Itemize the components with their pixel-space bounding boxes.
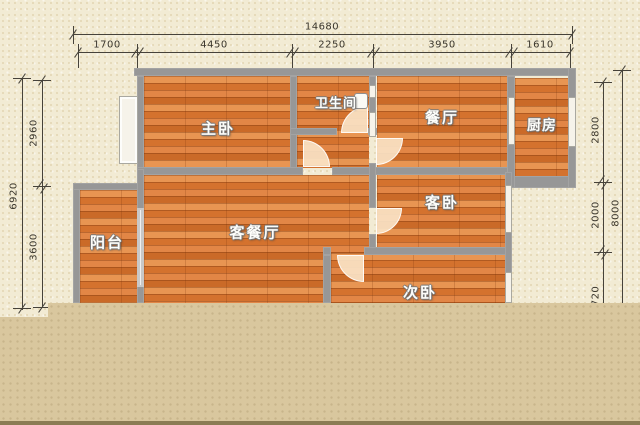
room-label-second-bedroom: 次卧 bbox=[403, 282, 437, 303]
window-bathroom-a bbox=[369, 85, 376, 98]
room-label-bathroom: 卫生间 bbox=[315, 93, 357, 112]
dim-left-total-line bbox=[22, 78, 23, 310]
room-label-balcony: 阳台 bbox=[90, 232, 124, 253]
dim-top-total: 14680 bbox=[305, 22, 339, 33]
dim-top-seg-3: 3950 bbox=[428, 40, 455, 51]
dim-right-total-line bbox=[622, 70, 623, 303]
wall-bathroom-left bbox=[290, 76, 297, 168]
dim-tick bbox=[570, 44, 571, 68]
dim-left-total: 6920 bbox=[9, 182, 20, 209]
room-label-dining-room: 餐厅 bbox=[425, 107, 459, 128]
wall-master-left bbox=[137, 76, 144, 169]
tan-overlay-left bbox=[0, 317, 48, 425]
wall-balcony-left bbox=[73, 183, 80, 303]
window-second-bedroom bbox=[505, 272, 512, 303]
dim-left-segments-line bbox=[42, 80, 43, 308]
dim-tick bbox=[594, 252, 612, 253]
dim-left-seg-1: 3600 bbox=[29, 233, 40, 260]
dim-left-seg-0: 2960 bbox=[29, 119, 40, 146]
room-label-guest-bedroom: 客卧 bbox=[425, 192, 459, 213]
wall-balcony-top bbox=[73, 183, 144, 190]
dim-top-seg-4: 1610 bbox=[526, 40, 553, 51]
dim-top-seg-2: 2250 bbox=[318, 40, 345, 51]
window-master-bedroom bbox=[119, 96, 138, 164]
floor-plan-canvas: 主卧 卫生间 餐厅 厨房 阳台 客餐厅 客卧 次卧 14680 1700 445… bbox=[0, 0, 640, 425]
dim-top-seg-0: 1700 bbox=[93, 40, 120, 51]
wall-second-top-b bbox=[364, 247, 512, 255]
window-kitchen-left bbox=[508, 97, 515, 145]
wall-second-left bbox=[323, 255, 331, 303]
room-label-living-dining-room: 客餐厅 bbox=[229, 222, 280, 243]
dim-right-seg-0: 2800 bbox=[591, 116, 602, 143]
sliding-door-balcony-line bbox=[140, 210, 141, 285]
dim-top-total-line bbox=[73, 34, 573, 35]
wall-second-top-a bbox=[323, 247, 331, 255]
room-label-kitchen: 厨房 bbox=[527, 115, 557, 135]
dim-right-seg-1: 2000 bbox=[591, 201, 602, 228]
dim-top-seg-1: 4450 bbox=[200, 40, 227, 51]
dim-right-total: 8000 bbox=[611, 199, 622, 226]
dim-right-segments-line bbox=[603, 82, 604, 303]
wall-mid-horizontal-b bbox=[332, 167, 512, 175]
dim-tick bbox=[33, 186, 51, 187]
tan-overlay-main bbox=[48, 303, 640, 425]
window-bathroom-b bbox=[369, 112, 376, 137]
wall-bathroom-bottom-a bbox=[290, 128, 337, 135]
bottom-edge-strip bbox=[0, 421, 640, 425]
wall-mid-horizontal-a bbox=[137, 167, 303, 175]
wall-top-exterior bbox=[134, 68, 575, 76]
window-kitchen-right bbox=[568, 97, 576, 147]
wall-center-vertical-b bbox=[369, 163, 376, 208]
dim-top-segments-line bbox=[78, 52, 570, 53]
window-guest-bedroom bbox=[505, 185, 512, 233]
wall-kitchen-bottom bbox=[505, 176, 576, 188]
dim-tick bbox=[594, 182, 612, 183]
room-label-master-bedroom: 主卧 bbox=[201, 118, 235, 139]
dim-tick bbox=[78, 44, 79, 68]
